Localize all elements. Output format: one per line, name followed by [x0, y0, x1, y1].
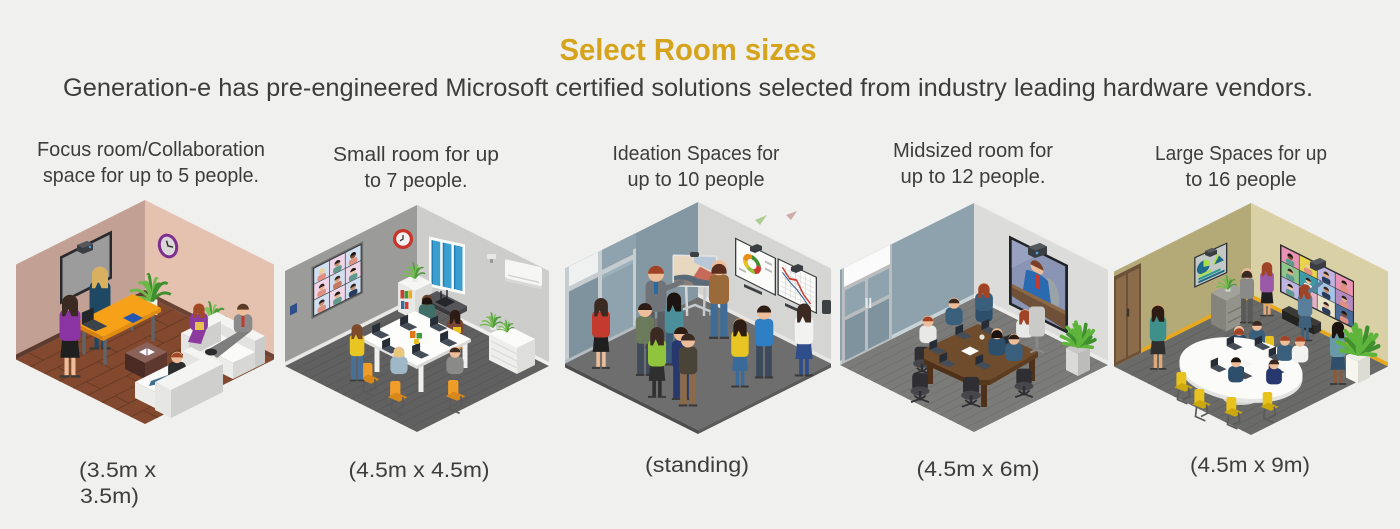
svg-text:up to 12 people.: up to 12 people.	[901, 166, 1046, 188]
svg-text:Small room for up: Small room for up	[333, 144, 499, 166]
svg-text:Focus room/Collaboration: Focus room/Collaboration	[37, 139, 265, 161]
svg-text:3.5m): 3.5m)	[80, 485, 139, 508]
svg-text:space for up to 5 people.: space for up to 5 people.	[43, 165, 259, 187]
svg-text:to 7 people.: to 7 people.	[365, 170, 468, 192]
svg-text:Generation-e has pre-engineere: Generation-e has pre-engineered Microsof…	[63, 74, 1313, 102]
svg-text:(3.5m x: (3.5m x	[79, 459, 157, 482]
svg-text:Ideation Spaces for: Ideation Spaces for	[613, 143, 780, 165]
svg-text:Large Spaces for up: Large Spaces for up	[1155, 143, 1327, 165]
svg-text:(4.5m x 4.5m): (4.5m x 4.5m)	[349, 459, 490, 482]
svg-text:up to 10 people: up to 10 people	[628, 169, 765, 191]
svg-text:(4.5m x 6m): (4.5m x 6m)	[917, 458, 1040, 481]
svg-text:to 16 people: to 16 people	[1186, 169, 1297, 191]
svg-text:(4.5m x 9m): (4.5m x 9m)	[1190, 454, 1310, 477]
svg-text:Midsized room for: Midsized room for	[893, 140, 1053, 162]
svg-text:(standing): (standing)	[645, 454, 749, 477]
svg-text:Select Room sizes: Select Room sizes	[560, 32, 817, 67]
